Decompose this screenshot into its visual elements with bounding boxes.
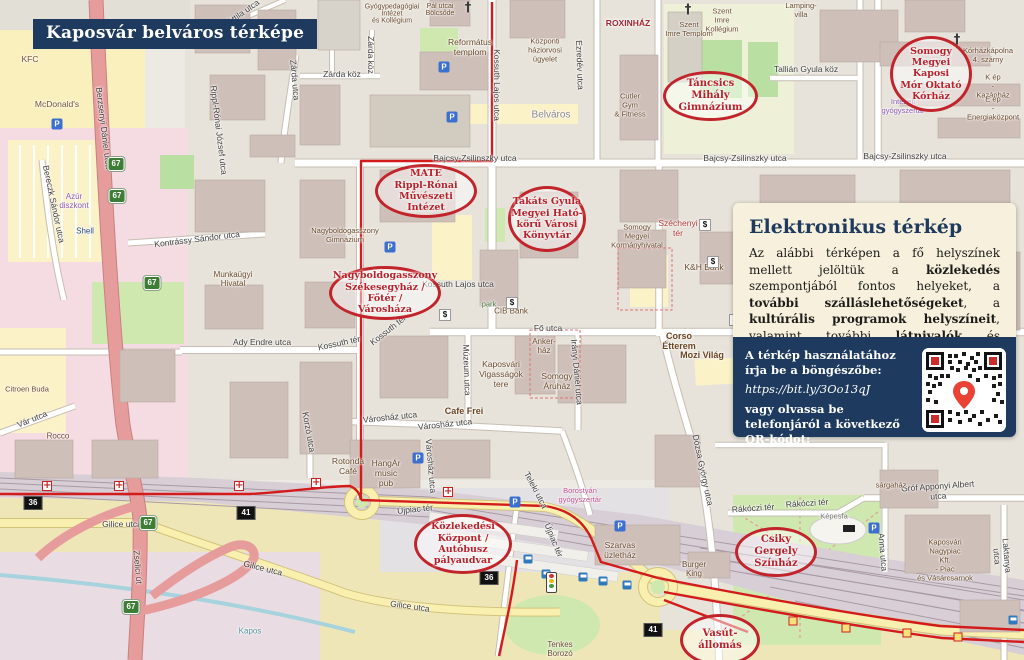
poi-label: Citroen Buda [5, 385, 49, 394]
street-label: Bajcsy-Zsilinszky utca [863, 151, 946, 161]
poi-label: Munkaügyi Hivatal [214, 270, 253, 288]
callout-label: Nagyboldogasszony Székesegyház / Főtér /… [332, 270, 438, 316]
poi-label: Református templom [448, 37, 492, 57]
parking-icon: P [439, 62, 450, 73]
street-label: Ezredév utca [574, 40, 586, 90]
map-callout: MATE Rippl-Rónai Művészeti Intézet [375, 164, 477, 218]
map-callout: Közlekedési Központ / Autóbusz pályaudva… [414, 514, 512, 574]
callout-label: Csiky Gergely Színház [738, 534, 814, 570]
poi-label: park [482, 300, 497, 309]
poi-label: Mozi Világ [680, 350, 724, 360]
street-label: Zárda köz [366, 36, 376, 74]
poi-label: Borostyán gyógyszertár [559, 486, 602, 504]
poi-label: Kaposvári Vigasságok tere [479, 359, 523, 389]
poi-label: Cafe Frei [445, 406, 484, 416]
route-shield-67: 67 [140, 516, 157, 530]
traffic-light-icon [546, 572, 557, 593]
poi-label: Somogy Megyei Kormányhivatal [611, 223, 663, 250]
poi-label: Gyógypedagógiai Intézet és Kollégium [365, 4, 420, 25]
parking-icon: P [385, 242, 396, 253]
parking-icon: P [413, 453, 424, 464]
street-label: Laktanya utca [991, 538, 1014, 574]
level-crossing-icon: + [234, 481, 244, 491]
poi-label: Corso Étterem [662, 331, 696, 351]
parking-icon: P [510, 497, 521, 508]
panel-heading: Elektronikus térkép [749, 216, 1000, 238]
level-crossing-icon: + [114, 481, 124, 491]
callout-label: Vasút- állomás [698, 628, 741, 652]
street-label: Bajcsy-Zsilinszky utca [433, 153, 516, 163]
map-callout: Takáts Gyula Megyei Ható- körű Városi Kö… [508, 186, 586, 252]
poi-label: Tenkes Borozó [547, 640, 572, 658]
street-label: Tallián Gyula köz [774, 64, 838, 74]
footer-instruction-2: vagy olvassa be telefonjáról a következő… [745, 402, 913, 447]
route-shield-local: 41 [644, 623, 663, 637]
poi-label: Somogy Áruház [541, 371, 572, 391]
city-map: Bajcsy-Zsilinszky utcaBajcsy-Zsilinszky … [0, 0, 1024, 660]
bus-stop-icon [1009, 616, 1018, 625]
route-shield-local: 36 [480, 571, 499, 585]
route-shield-67: 67 [123, 600, 140, 614]
street-label: Múzeum utca [461, 344, 473, 395]
poi-label: Kórházkápolna 4. szárny [963, 46, 1013, 64]
atm-icon: $ [439, 309, 451, 321]
church-cross-icon: † [685, 3, 692, 18]
poi-label: Anker- ház [532, 337, 556, 355]
atm-icon: $ [506, 297, 518, 309]
parking-icon: P [869, 523, 880, 534]
street-label: Gilice utca [102, 519, 142, 529]
parking-icon: P [615, 521, 626, 532]
poi-label: Kaposvári Nagypiac Kft. - Piac és Vásárc… [917, 538, 973, 583]
poi-label: Nagyboldogasszony Gimnázium [311, 226, 379, 244]
poi-label: Azúr diszkont [59, 192, 88, 210]
route-shield-67: 67 [108, 157, 125, 171]
route-stop-marker [954, 633, 963, 642]
poi-label: Lamping- villa [785, 1, 816, 19]
route-shield-local: 41 [237, 506, 256, 520]
callout-label: MATE Rippl-Rónai Művészeti Intézet [378, 168, 474, 214]
footer-instruction-1: A térkép használatához írja be a böngész… [745, 348, 913, 378]
map-callout: Nagyboldogasszony Székesegyház / Főtér /… [329, 266, 441, 320]
route-stop-marker [903, 629, 912, 638]
bus-stop-icon [579, 573, 588, 582]
poi-label: Cutler Gym & Fitness [614, 92, 645, 119]
level-crossing-icon: + [42, 481, 52, 491]
poi-label: Képesfa [820, 512, 848, 521]
route-stop-marker [789, 617, 798, 626]
poi-label: Belváros [532, 110, 571, 121]
poi-label: Kapos [239, 627, 262, 636]
street-label: Kossuth Lajos utca [492, 49, 502, 121]
route-shield-67: 67 [109, 189, 126, 203]
map-title: Kaposvár belváros térképe [46, 23, 304, 43]
qr-code-graphic [922, 348, 1006, 432]
callout-label: Közlekedési Központ / Autóbusz pályaudva… [417, 521, 509, 567]
poi-label: HangÁr music pub [372, 458, 401, 488]
route-shield-local: 36 [24, 496, 43, 510]
poi-label: Pál utcai Bölcsőde [426, 3, 455, 17]
atm-icon: $ [707, 256, 719, 268]
map-callout: Csiky Gergely Színház [735, 527, 817, 577]
qr-code [922, 348, 1006, 432]
poi-label: ROXINHÁZ [606, 18, 650, 28]
atm-icon: $ [699, 219, 711, 231]
poi-label: Széchenyi tér [658, 218, 697, 238]
map-title-banner: Kaposvár belváros térképe [33, 19, 317, 49]
church-cross-icon: † [465, 1, 472, 16]
bus-stop-icon [599, 577, 608, 586]
street-label: Bajcsy-Zsilinszky utca [703, 153, 786, 163]
poi-label: Szarvas üzletház [604, 540, 636, 560]
street-label: Zárda köz [323, 69, 361, 79]
street-label: Ady Endre utca [233, 337, 291, 347]
callout-label: Takáts Gyula Megyei Ható- körű Városi Kö… [511, 196, 582, 242]
poi-label: KFC [22, 54, 39, 64]
poi-label: Rocco [47, 432, 70, 441]
info-panel: Elektronikus térkép Az alábbi térképen a… [733, 203, 1016, 437]
route-stop-marker [842, 624, 851, 633]
poi-label: Rotonda Café [332, 456, 364, 476]
map-callout: Somogy Megyei Kaposi Mór Oktató Kórház [890, 36, 972, 112]
level-crossing-icon: + [443, 487, 453, 497]
poi-label: Központi háziorvosi ügyelet [528, 37, 562, 64]
poi-label: Burger King [682, 560, 706, 578]
callout-label: Táncsics Mihály Gimnázium [666, 78, 755, 114]
poi-label: McDonald's [35, 99, 79, 109]
bus-stop-icon [524, 555, 533, 564]
poi-label: Szent Imre Templom [665, 20, 712, 38]
map-callout: Táncsics Mihály Gimnázium [663, 71, 758, 121]
parking-icon: P [52, 119, 63, 130]
poi-label: sárgaház [876, 481, 907, 490]
footer-url[interactable]: https://bit.ly/3Oo13qJ [745, 382, 913, 397]
poi-label: E ép - Energiaközpont [967, 95, 1019, 122]
bus-stop-icon [623, 581, 632, 590]
level-crossing-icon: + [311, 478, 321, 488]
parking-icon: P [447, 112, 458, 123]
map-callout: Vasút- állomás [680, 614, 760, 660]
panel-footer: A térkép használatához írja be a böngész… [733, 337, 1016, 437]
street-label: Fő utca [534, 323, 562, 333]
poi-label: Shell [76, 227, 94, 236]
route-shield-67: 67 [144, 276, 161, 290]
callout-label: Somogy Megyei Kaposi Mór Oktató Kórház [893, 46, 969, 103]
